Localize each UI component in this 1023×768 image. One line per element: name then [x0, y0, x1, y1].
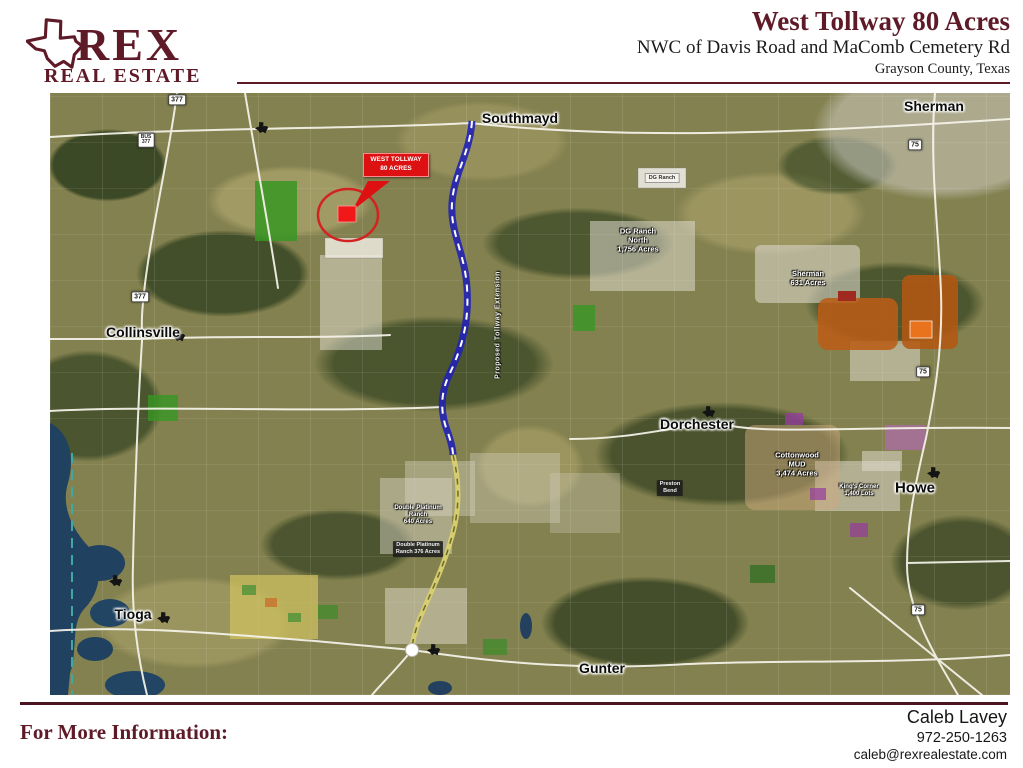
route-label-proposed-tollway: Proposed Tollway Extension	[495, 271, 502, 379]
highway-shield-75-south: 75	[911, 604, 925, 615]
header-divider	[237, 82, 1010, 84]
highway-shield-377-collinsville: 377	[131, 291, 149, 302]
flyer-page: REX REAL ESTATE West Tollway 80 Acres NW…	[0, 0, 1023, 768]
property-callout-line2: 80 ACRES	[365, 165, 427, 174]
property-callout: WEST TOLLWAY 80 ACRES	[363, 153, 429, 177]
map-label-southmayd: Southmayd	[482, 110, 558, 126]
road-junction	[406, 644, 419, 657]
property-marker	[318, 181, 390, 241]
parcel-label-kings-corner: King's Corner 1,400 Lots	[839, 484, 878, 498]
parcel-label-cottonwood-mud: Cottonwood MUD 3,474 Acres	[775, 451, 819, 478]
map-graphics	[50, 93, 1010, 695]
parcel-badge-preston-bend: Preston Bend	[657, 480, 683, 496]
rex-logo: REX REAL ESTATE	[20, 6, 235, 90]
map-label-tioga: Tioga	[114, 606, 151, 622]
title-block: West Tollway 80 Acres NWC of Davis Road …	[637, 6, 1010, 79]
brand-subtitle: REAL ESTATE	[44, 66, 201, 86]
brand-name: REX	[76, 22, 182, 68]
contact-name: Caleb Lavey	[854, 707, 1007, 729]
map-label-gunter: Gunter	[579, 660, 625, 676]
footer-divider	[20, 702, 1008, 705]
highway-shield-75-mid: 75	[916, 366, 930, 377]
footer-info-label: For More Information:	[20, 720, 228, 745]
map-label-dorchester: Dorchester	[660, 416, 734, 432]
page-subtitle: NWC of Davis Road and MaComb Cemetery Rd	[637, 37, 1010, 60]
proposed-tollway-route	[442, 121, 472, 455]
parcel-label-double-platinum: Double Platinum Ranch 640 Acres	[394, 505, 441, 527]
highway-shield-377-north: 377	[168, 94, 186, 105]
property-callout-line1: WEST TOLLWAY	[365, 156, 427, 165]
map-label-sherman: Sherman	[904, 98, 964, 114]
aerial-map: Southmayd Sherman Collinsville Dorcheste…	[50, 93, 1010, 695]
page-location: Grayson County, Texas	[637, 60, 1010, 79]
contact-block: Caleb Lavey 972-250-1263 caleb@rexreales…	[854, 707, 1007, 764]
parcel-label-sherman-631: Sherman 631 Acres	[790, 269, 825, 287]
parcel-badge-double-platinum-376: Double Platinum Ranch 376 Acres	[393, 541, 443, 557]
parcel-label-dg-ranch: DG Ranch	[645, 173, 680, 183]
highway-shield-bus-377: BUS 377	[138, 133, 155, 148]
map-label-collinsville: Collinsville	[106, 324, 180, 340]
header: REX REAL ESTATE West Tollway 80 Acres NW…	[0, 0, 1023, 93]
parcel-label-dg-ranch-north: DG Ranch North 1,756 Acres	[617, 227, 658, 254]
map-label-howe: Howe	[895, 480, 935, 497]
contact-email: caleb@rexrealestate.com	[854, 747, 1007, 764]
highway-shield-75-north: 75	[908, 139, 922, 150]
page-title: West Tollway 80 Acres	[637, 6, 1010, 37]
road-network	[50, 93, 1010, 695]
contact-phone: 972-250-1263	[854, 729, 1007, 747]
